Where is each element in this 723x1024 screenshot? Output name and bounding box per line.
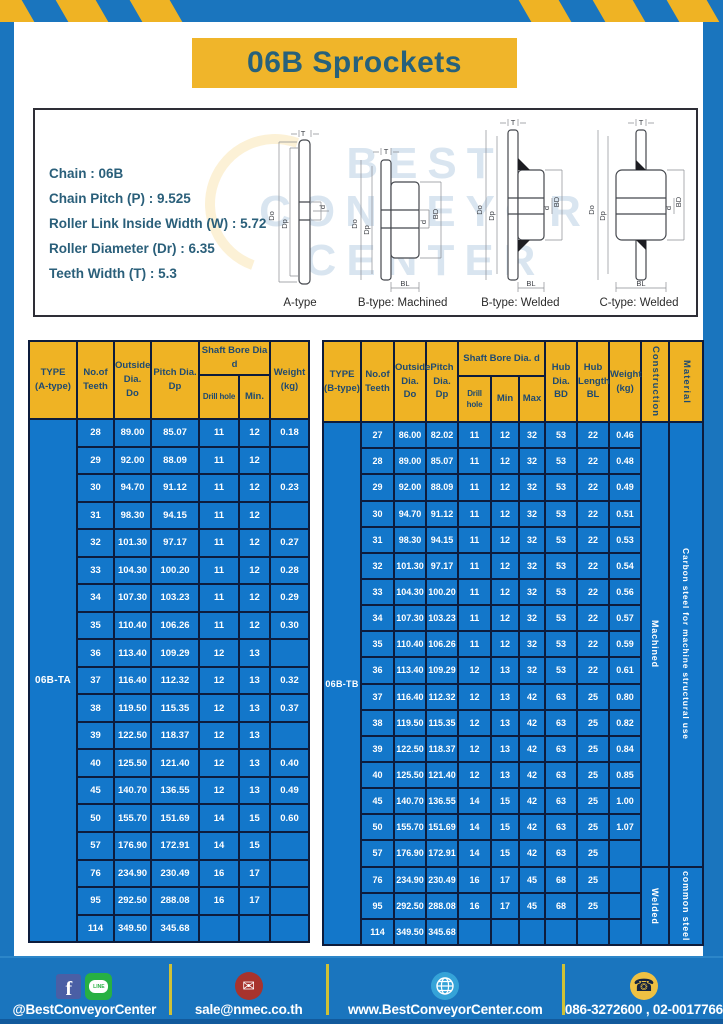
- footer-website-group: www.BestConveyorCenter.com: [329, 962, 562, 1017]
- table-cell: [609, 840, 641, 866]
- footer-phone-group: ☎ 086-3272600 , 02-0017766: [565, 962, 723, 1017]
- table-cell: 13: [239, 722, 270, 750]
- table-cell: 109.29: [426, 657, 458, 683]
- line-icon: LINE: [85, 973, 112, 1000]
- hazard-stripe: [667, 0, 720, 22]
- table-cell: 35: [77, 612, 114, 640]
- table-cell: 12: [239, 502, 270, 530]
- col-header-hub-length: Hub Length BL: [577, 341, 609, 422]
- table-cell: 0.23: [270, 474, 309, 502]
- table-cell: 16: [199, 860, 239, 888]
- table-cell: 12: [458, 762, 491, 788]
- table-cell: 85.07: [151, 419, 199, 447]
- table-cell: 42: [519, 788, 545, 814]
- table-cell: 63: [545, 684, 577, 710]
- phone-icon: ☎: [630, 972, 658, 1000]
- table-cell: 14: [458, 814, 491, 840]
- table-cell: 50: [361, 814, 394, 840]
- table-cell: 31: [361, 527, 394, 553]
- table-cell: 53: [545, 631, 577, 657]
- table-cell: 22: [577, 474, 609, 500]
- table-cell: 32: [519, 474, 545, 500]
- table-cell: 88.09: [426, 474, 458, 500]
- table-cell: 119.50: [114, 694, 151, 722]
- table-cell: 91.12: [426, 501, 458, 527]
- table-cell: 0.18: [270, 419, 309, 447]
- table-cell: 57: [361, 840, 394, 866]
- table-cell: 140.70: [394, 788, 426, 814]
- footer-social-group: f LINE @BestConveyorCenter: [0, 962, 169, 1017]
- table-cell: 12: [491, 474, 519, 500]
- svg-text:d: d: [542, 206, 551, 210]
- col-header-min: Min: [491, 376, 519, 422]
- table-cell: 230.49: [426, 867, 458, 893]
- table-cell: 16: [458, 867, 491, 893]
- table-cell: [270, 860, 309, 888]
- table-cell: 13: [239, 667, 270, 695]
- table-cell: 63: [545, 840, 577, 866]
- table-cell: 92.00: [114, 447, 151, 475]
- table-cell: 13: [491, 657, 519, 683]
- table-cell: 155.70: [394, 814, 426, 840]
- table-cell: 34: [361, 605, 394, 631]
- table-cell: 11: [199, 419, 239, 447]
- table-cell: 101.30: [114, 529, 151, 557]
- table-cell: 89.00: [114, 419, 151, 447]
- svg-text:d: d: [419, 220, 428, 224]
- table-cell: 122.50: [394, 736, 426, 762]
- table-cell: 107.30: [394, 605, 426, 631]
- col-header-shaft-bore: Shaft Bore Dia. d: [458, 341, 545, 376]
- table-cell: 101.30: [394, 553, 426, 579]
- table-cell: 0.60: [270, 804, 309, 832]
- table-cell: 34: [77, 584, 114, 612]
- spec-line: Chain Pitch (P) : 9.525: [49, 187, 266, 212]
- table-cell: 11: [199, 502, 239, 530]
- table-cell: 85.07: [426, 448, 458, 474]
- table-cell: 22: [577, 527, 609, 553]
- col-header-material: Material: [669, 341, 703, 422]
- table-cell: 63: [545, 814, 577, 840]
- table-cell: [199, 915, 239, 943]
- table-cell: 37: [77, 667, 114, 695]
- col-header-pitch-dia: Pitch Dia. Dp: [151, 341, 199, 419]
- table-cell: 22: [577, 501, 609, 527]
- col-header-teeth: No.of Teeth: [361, 341, 394, 422]
- table-cell: 14: [199, 832, 239, 860]
- table-a-header: TYPE (A-type) No.of Teeth Outside Dia. D…: [29, 341, 309, 419]
- table-b-type: TYPE (B-type) No.of Teeth Outside Dia. D…: [322, 340, 704, 946]
- table-cell: 28: [77, 419, 114, 447]
- table-cell: 113.40: [114, 639, 151, 667]
- svg-text:T: T: [639, 118, 644, 127]
- table-cell: 68: [545, 893, 577, 919]
- table-cell: [609, 893, 641, 919]
- table-cell: 13: [239, 777, 270, 805]
- table-cell: 118.37: [426, 736, 458, 762]
- table-cell: 92.00: [394, 474, 426, 500]
- table-cell: 112.32: [151, 667, 199, 695]
- table-cell: 349.50: [394, 919, 426, 945]
- table-cell: 13: [239, 749, 270, 777]
- table-a-body: 06B-TA2889.0085.0711120.182992.0088.0911…: [29, 419, 309, 942]
- table-cell: 11: [458, 553, 491, 579]
- construction-cell: Machined: [641, 422, 669, 866]
- table-cell: 11: [458, 474, 491, 500]
- table-cell: 12: [199, 639, 239, 667]
- table-cell: 11: [458, 579, 491, 605]
- table-cell: 0.40: [270, 749, 309, 777]
- footer-contact-bar: f LINE @BestConveyorCenter ✉ sale@nmec.c…: [0, 956, 723, 1024]
- hazard-stripe: [519, 0, 572, 22]
- table-cell: 234.90: [394, 867, 426, 893]
- svg-text:Do: Do: [475, 205, 484, 215]
- table-cell: 12: [239, 612, 270, 640]
- table-cell: 22: [577, 448, 609, 474]
- table-cell: 0.46: [609, 422, 641, 448]
- hazard-stripe: [0, 0, 34, 22]
- table-cell: 33: [77, 557, 114, 585]
- table-cell: 29: [77, 447, 114, 475]
- table-cell: 12: [491, 579, 519, 605]
- table-cell: 12: [458, 684, 491, 710]
- b-type-welded-drawing: T Do Dp d BD: [468, 118, 572, 296]
- footer-content: f LINE @BestConveyorCenter ✉ sale@nmec.c…: [0, 962, 723, 1017]
- table-cell: 345.68: [426, 919, 458, 945]
- table-cell: 116.40: [114, 667, 151, 695]
- table-cell: 125.50: [114, 749, 151, 777]
- table-cell: 115.35: [151, 694, 199, 722]
- table-cell: 88.09: [151, 447, 199, 475]
- hazard-stripes-right: [511, 0, 723, 22]
- type-cell: 06B-TA: [29, 419, 77, 942]
- table-cell: 50: [77, 804, 114, 832]
- svg-text:Dp: Dp: [280, 219, 289, 229]
- material-cell: Carbon steel for machine structural use: [669, 422, 703, 866]
- table-cell: 0.49: [270, 777, 309, 805]
- b-type-machined-diagram: T Do Dp d BD BL: [351, 144, 455, 309]
- table-cell: 118.37: [151, 722, 199, 750]
- table-cell: 32: [519, 501, 545, 527]
- social-handle: @BestConveyorCenter: [13, 1002, 157, 1017]
- table-cell: 110.40: [394, 631, 426, 657]
- table-cell: 22: [577, 631, 609, 657]
- svg-text:Do: Do: [587, 205, 596, 215]
- table-cell: 12: [239, 529, 270, 557]
- table-cell: 95: [361, 893, 394, 919]
- table-cell: [458, 919, 491, 945]
- table-cell: 114: [361, 919, 394, 945]
- table-cell: 94.70: [394, 501, 426, 527]
- col-header-weight: Weight (kg): [270, 341, 309, 419]
- table-cell: 121.40: [151, 749, 199, 777]
- table-cell: 116.40: [394, 684, 426, 710]
- table-cell: 22: [577, 553, 609, 579]
- table-cell: 0.53: [609, 527, 641, 553]
- table-cell: 11: [199, 612, 239, 640]
- table-cell: 31: [77, 502, 114, 530]
- table-cell: 0.32: [270, 667, 309, 695]
- table-cell: 12: [491, 553, 519, 579]
- page-title: 06B Sprockets: [247, 46, 462, 80]
- table-cell: 39: [361, 736, 394, 762]
- table-cell: 45: [77, 777, 114, 805]
- table-cell: 0.30: [270, 612, 309, 640]
- line-bubble: LINE: [89, 980, 108, 993]
- hazard-stripe: [130, 0, 183, 22]
- page-title-banner: 06B Sprockets: [192, 38, 517, 88]
- table-cell: 234.90: [114, 860, 151, 888]
- table-cell: 0.27: [270, 529, 309, 557]
- table-cell: 35: [361, 631, 394, 657]
- globe-icon: [431, 972, 459, 1000]
- table-cell: 22: [577, 579, 609, 605]
- table-cell: 95: [77, 887, 114, 915]
- table-cell: 106.26: [151, 612, 199, 640]
- table-cell: 32: [519, 527, 545, 553]
- table-cell: 14: [458, 788, 491, 814]
- table-cell: 30: [361, 501, 394, 527]
- table-cell: 104.30: [394, 579, 426, 605]
- table-cell: 22: [577, 657, 609, 683]
- svg-text:Do: Do: [351, 219, 359, 229]
- table-cell: 0.28: [270, 557, 309, 585]
- table-cell: 76: [77, 860, 114, 888]
- diagram-caption: C-type: Welded: [599, 297, 678, 309]
- spec-line: Chain : 06B: [49, 162, 266, 187]
- table-cell: 25: [577, 710, 609, 736]
- table-cell: 11: [458, 605, 491, 631]
- table-cell: 0.54: [609, 553, 641, 579]
- table-cell: 27: [361, 422, 394, 448]
- svg-text:Dp: Dp: [487, 211, 496, 221]
- table-cell: 16: [199, 887, 239, 915]
- table-cell: 11: [199, 529, 239, 557]
- table-cell: 22: [577, 605, 609, 631]
- table-cell: 32: [519, 422, 545, 448]
- table-cell: 12: [491, 605, 519, 631]
- table-cell: 0.61: [609, 657, 641, 683]
- table-cell: 86.00: [394, 422, 426, 448]
- hazard-stripe: [56, 0, 109, 22]
- table-cell: 33: [361, 579, 394, 605]
- table-cell: 13: [491, 684, 519, 710]
- table-cell: 42: [519, 840, 545, 866]
- table-cell: 25: [577, 762, 609, 788]
- hazard-top-bar: [0, 0, 723, 22]
- table-cell: 151.69: [426, 814, 458, 840]
- table-cell: 12: [491, 422, 519, 448]
- table-cell: 122.50: [114, 722, 151, 750]
- table-cell: 11: [199, 557, 239, 585]
- table-cell: [270, 639, 309, 667]
- table-cell: 63: [545, 736, 577, 762]
- table-cell: 29: [361, 474, 394, 500]
- table-cell: 11: [458, 422, 491, 448]
- table-cell: 17: [491, 893, 519, 919]
- table-cell: 11: [458, 448, 491, 474]
- table-cell: 42: [519, 762, 545, 788]
- table-cell: 151.69: [151, 804, 199, 832]
- table-cell: [609, 867, 641, 893]
- table-cell: 17: [491, 867, 519, 893]
- col-header-hub-dia: Hub Dia. BD: [545, 341, 577, 422]
- table-cell: 63: [545, 710, 577, 736]
- email-address: sale@nmec.co.th: [195, 1002, 303, 1017]
- table-cell: 292.50: [114, 887, 151, 915]
- table-cell: 1.07: [609, 814, 641, 840]
- table-cell: [270, 915, 309, 943]
- table-cell: 112.32: [426, 684, 458, 710]
- table-cell: 12: [458, 710, 491, 736]
- table-cell: 0.49: [609, 474, 641, 500]
- table-cell: 25: [577, 736, 609, 762]
- table-cell: 98.30: [114, 502, 151, 530]
- svg-text:Dp: Dp: [362, 225, 371, 235]
- page-content: 06B Sprockets BEST CONVEYOR CENTER Chain…: [14, 22, 703, 958]
- social-icons: f LINE: [56, 973, 112, 1000]
- table-cell: 0.80: [609, 684, 641, 710]
- table-cell: 140.70: [114, 777, 151, 805]
- footer-bottom-strip: [0, 1019, 723, 1024]
- table-cell: 12: [239, 447, 270, 475]
- table-cell: 45: [361, 788, 394, 814]
- table-cell: 12: [199, 777, 239, 805]
- table-cell: 76: [361, 867, 394, 893]
- table-cell: 45: [519, 867, 545, 893]
- table-cell: 15: [239, 832, 270, 860]
- table-cell: 32: [519, 631, 545, 657]
- table-cell: 42: [519, 684, 545, 710]
- spec-line: Roller Link Inside Width (W) : 5.72: [49, 212, 266, 237]
- facebook-icon: f: [56, 974, 81, 999]
- hazard-stripes-left: [0, 0, 222, 22]
- table-cell: 57: [77, 832, 114, 860]
- table-cell: 11: [199, 584, 239, 612]
- svg-text:BD: BD: [674, 196, 683, 207]
- svg-text:d: d: [318, 205, 327, 209]
- table-cell: 25: [577, 867, 609, 893]
- line-label: LINE: [93, 984, 104, 990]
- table-cell: 98.30: [394, 527, 426, 553]
- construction-cell: Welded: [641, 867, 669, 946]
- c-type-welded-drawing: T Do Dp d BD: [586, 118, 692, 296]
- table-cell: 15: [491, 788, 519, 814]
- svg-text:T: T: [383, 147, 388, 156]
- svg-text:T: T: [301, 129, 306, 138]
- col-header-shaft-bore: Shaft Bore Dia d: [199, 341, 270, 375]
- table-b-body: 06B-TB2786.0082.0211123253220.46Machined…: [323, 422, 703, 945]
- table-cell: 25: [577, 893, 609, 919]
- table-cell: 121.40: [426, 762, 458, 788]
- c-type-welded-diagram: T Do Dp d BD: [586, 118, 692, 309]
- table-cell: 17: [239, 860, 270, 888]
- table-cell: 42: [519, 814, 545, 840]
- phone-numbers: 086-3272600 , 02-0017766: [565, 1002, 723, 1017]
- material-cell: common steel: [669, 867, 703, 946]
- table-cell: [239, 915, 270, 943]
- table-cell: 32: [519, 553, 545, 579]
- diagram-caption: B-type: Welded: [481, 297, 559, 309]
- table-cell: 114: [77, 915, 114, 943]
- catalog-page: 06B Sprockets BEST CONVEYOR CENTER Chain…: [0, 0, 723, 1024]
- table-cell: 32: [519, 579, 545, 605]
- table-cell: 45: [519, 893, 545, 919]
- table-cell: [270, 722, 309, 750]
- table-cell: 42: [519, 710, 545, 736]
- table-cell: 32: [519, 448, 545, 474]
- table-cell: 40: [77, 749, 114, 777]
- table-cell: 94.70: [114, 474, 151, 502]
- table-cell: 68: [545, 867, 577, 893]
- table-cell: [270, 887, 309, 915]
- table-cell: 12: [239, 474, 270, 502]
- table-cell: [609, 919, 641, 945]
- table-cell: 12: [239, 419, 270, 447]
- table-cell: 0.84: [609, 736, 641, 762]
- col-header-max: Max: [519, 376, 545, 422]
- table-cell: 113.40: [394, 657, 426, 683]
- table-cell: 0.29: [270, 584, 309, 612]
- table-cell: 230.49: [151, 860, 199, 888]
- table-cell: 53: [545, 422, 577, 448]
- table-cell: 12: [199, 694, 239, 722]
- type-cell: 06B-TB: [323, 422, 361, 945]
- table-cell: 109.29: [151, 639, 199, 667]
- table-cell: 32: [361, 553, 394, 579]
- table-row: 06B-TA2889.0085.0711120.18: [29, 419, 309, 447]
- table-cell: 42: [519, 736, 545, 762]
- table-cell: 25: [577, 840, 609, 866]
- table-cell: 13: [239, 694, 270, 722]
- table-cell: 25: [577, 684, 609, 710]
- svg-text:d: d: [664, 206, 673, 210]
- table-cell: 172.91: [151, 832, 199, 860]
- col-header-type: TYPE (B-type): [323, 341, 361, 422]
- col-header-teeth: No.of Teeth: [77, 341, 114, 419]
- table-cell: 12: [491, 448, 519, 474]
- table-cell: 22: [577, 422, 609, 448]
- table-cell: 103.23: [151, 584, 199, 612]
- table-cell: 0.82: [609, 710, 641, 736]
- table-cell: 53: [545, 527, 577, 553]
- table-cell: 1.00: [609, 788, 641, 814]
- svg-text:Dp: Dp: [598, 211, 607, 221]
- table-cell: 32: [77, 529, 114, 557]
- table-cell: 89.00: [394, 448, 426, 474]
- table-cell: 288.08: [151, 887, 199, 915]
- table-cell: 12: [491, 631, 519, 657]
- table-cell: 136.55: [151, 777, 199, 805]
- table-cell: 16: [458, 893, 491, 919]
- table-cell: 94.15: [151, 502, 199, 530]
- col-header-pitch-dia: Pitch Dia. Dp: [426, 341, 458, 422]
- table-cell: 36: [361, 657, 394, 683]
- hazard-stripe: [593, 0, 646, 22]
- table-cell: 104.30: [114, 557, 151, 585]
- website-url: www.BestConveyorCenter.com: [348, 1002, 543, 1017]
- table-cell: 13: [491, 710, 519, 736]
- table-cell: 103.23: [426, 605, 458, 631]
- footer-email-group: ✉ sale@nmec.co.th: [172, 962, 326, 1017]
- table-cell: 0.48: [609, 448, 641, 474]
- table-cell: 110.40: [114, 612, 151, 640]
- table-cell: 38: [361, 710, 394, 736]
- facebook-letter: f: [66, 980, 73, 999]
- table-cell: 0.37: [270, 694, 309, 722]
- table-row: 76234.90230.491617456825Weldedcommon ste…: [323, 867, 703, 893]
- table-cell: 82.02: [426, 422, 458, 448]
